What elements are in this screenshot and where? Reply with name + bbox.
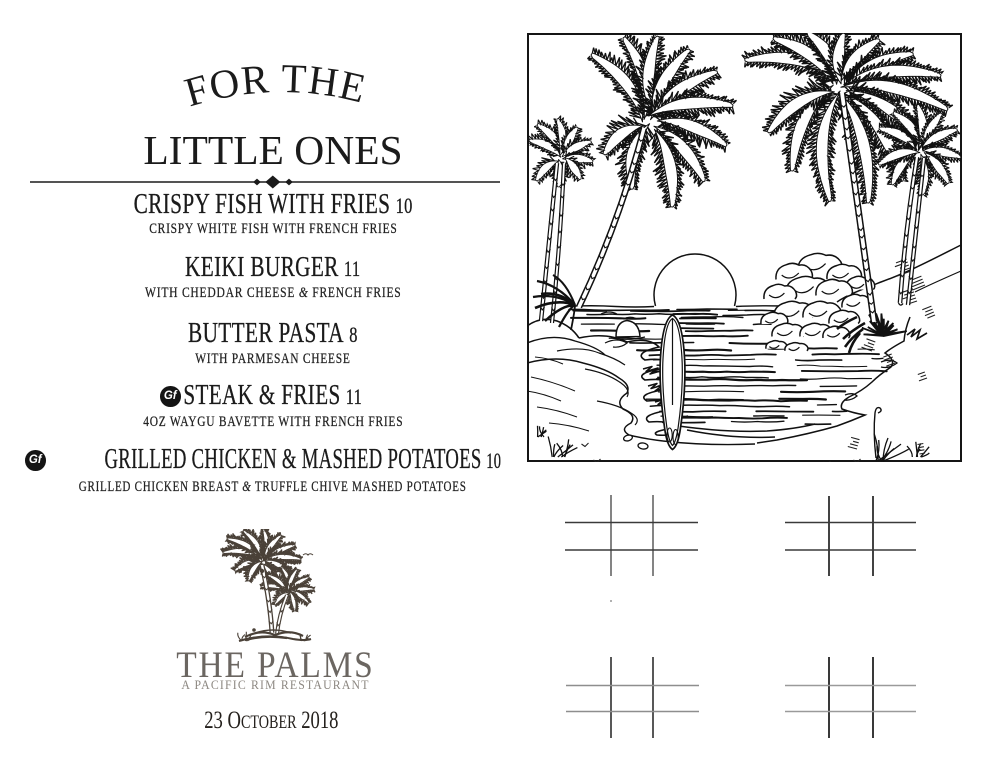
svg-text:FOR THE: FOR THE: [179, 55, 370, 115]
